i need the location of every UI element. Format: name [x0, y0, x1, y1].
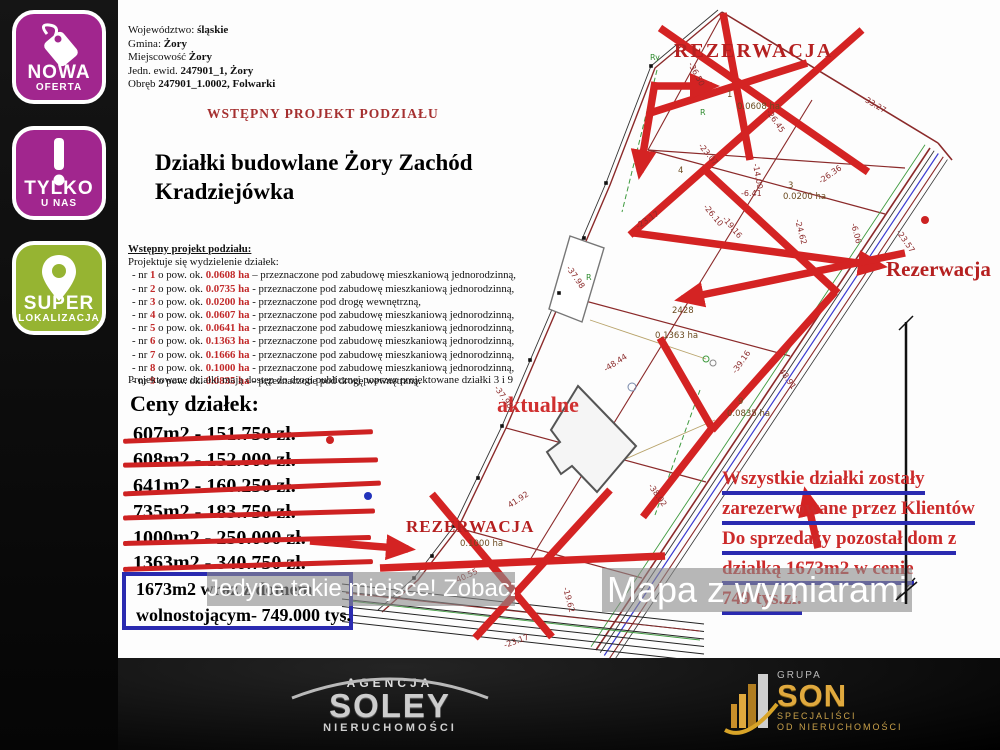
cadastral-header-line: Gmina: Żory: [128, 38, 275, 52]
plot-area-label: 0.0835 ha: [727, 409, 770, 419]
cadastral-header-line: Miejscowość Żory: [128, 51, 275, 65]
listing-flyer: RyRRREZERWACJARezerwacjaaktualneREZERWAC…: [0, 0, 1000, 750]
survey-point: [557, 291, 561, 295]
dimension-line-overlay: [890, 560, 922, 615]
dimension-label: -39.16: [730, 349, 752, 375]
price-row: 608m2 - 152.000 zł.: [133, 449, 296, 472]
cadastral-header-line: Jedn. ewid. 247901_1, Żory: [128, 65, 275, 79]
watermark-right: Mapa z wymiarami: [602, 568, 912, 612]
badge-sidebar: NOWA OFERTA TYLKO U NAS SUPER LOKALIZACJ…: [0, 0, 118, 750]
plot-area-label: 0.1000 ha: [460, 539, 503, 549]
map-boundary-line: [563, 295, 790, 356]
soley-agency-logo: AGENCJA SOLEY NIERUCHOMOŚCI: [280, 666, 500, 746]
cadastral-header: Województwo: śląskieGmina: ŻoryMiejscowo…: [128, 24, 275, 92]
dimension-label: -23.17: [634, 209, 661, 231]
price-list: Ceny działek: 607m2 - 151.750 zł.608m2 -…: [130, 391, 259, 417]
plot-area-label: 3: [788, 181, 793, 191]
price-row: 735m2 - 183.750 zł.: [133, 501, 296, 524]
son-name: SON: [777, 681, 903, 711]
survey-point: [528, 358, 532, 362]
parcel-division-list: Wstępny projekt podziału: Projektuje się…: [128, 243, 516, 388]
parcel-item: - nr 5 o pow. ok. 0.0641 ha - przeznaczo…: [128, 322, 516, 335]
survey-point: [604, 181, 608, 185]
page-title: Działki budowlane Żory Zachód Kradziejów…: [155, 148, 515, 206]
survey-point: [476, 476, 480, 480]
badge-nowa-oferta: NOWA OFERTA: [12, 10, 106, 104]
son-group-logo: GRUPA SON SPECJALIŚCI OD NIERUCHOMOŚCI: [715, 664, 945, 746]
badge-super-lokalizacja: SUPER LOKALIZACJA: [12, 241, 106, 335]
dimension-label: -24.62: [793, 218, 808, 245]
map-label: Rezerwacja: [886, 257, 991, 281]
plot-area-label: 9: [738, 397, 743, 407]
dimension-label: -6.41: [741, 189, 762, 198]
map-boundary-line: [648, 13, 723, 150]
parcel-item: - nr 7 o pow. ok. 0.1666 ha - przeznaczo…: [128, 349, 516, 362]
reservation-cross-mark: [310, 541, 408, 549]
plot-area-label: 2428: [672, 306, 694, 316]
dimension-label: -26.10: [701, 203, 724, 229]
price-row: 641m2 - 160.250 zł.: [133, 475, 296, 498]
reservation-cross-mark: [682, 253, 905, 299]
reservation-cross-mark: [640, 82, 655, 172]
parcel-item: - nr 4 o pow. ok. 0.0607 ha - przeznaczo…: [128, 309, 516, 322]
parcel-list-heading: Wstępny projekt podziału:: [128, 243, 516, 256]
badge-subtitle: LOKALIZACJA: [18, 313, 100, 325]
plot-area-label: 0.1363 ha: [655, 331, 698, 341]
price-row: 1000m2 - 250.000 zł.: [133, 527, 306, 550]
dimension-label: -23.57: [894, 228, 916, 254]
parcel-item: - nr 6 o pow. ok. 0.1363 ha - przeznaczo…: [128, 335, 516, 348]
exclamation-icon: [33, 138, 85, 188]
dimension-label: -48.44: [602, 352, 629, 374]
title-line-1: Działki budowlane Żory Zachód: [155, 148, 515, 177]
badge-subtitle: U NAS: [41, 198, 77, 210]
dimension-label: 48.91: [777, 367, 798, 391]
parcel-item: - nr 3 o pow. ok. 0.0200 ha - przeznaczo…: [128, 296, 516, 309]
survey-mark-label: R: [586, 273, 592, 282]
project-heading: WSTĘPNY PROJEKT PODZIAŁU: [207, 106, 439, 122]
plot-area-label: 1: [727, 90, 732, 100]
price-row: 607m2 - 151.750 zł.: [133, 423, 296, 446]
survey-point: [500, 424, 504, 428]
survey-mark-label: R: [700, 108, 706, 117]
dimension-label: -19.16: [720, 215, 743, 241]
price-heading: Ceny działek:: [130, 391, 259, 417]
dimension-label: -33.27: [861, 94, 888, 115]
survey-point: [649, 64, 653, 68]
parcel-footnote: Projektowane działki mają dostęp do drog…: [128, 374, 513, 386]
parcel-items: - nr 1 o pow. ok. 0.0608 ha – przeznaczo…: [128, 269, 516, 388]
title-line-2: Kradziejówka: [155, 177, 515, 206]
dimension-label: -6.06: [849, 222, 863, 244]
dimension-label: -23.17: [503, 633, 530, 650]
reservation-cross-mark: [634, 233, 880, 266]
reservation-note-line: Wszystkie działki zostały: [722, 466, 925, 495]
dimension-label: -26.36: [817, 163, 843, 185]
plot-area-label: 0.0200 ha: [783, 192, 826, 202]
survey-point: [582, 236, 586, 240]
cadastral-header-line: Obręb 247901_1.0002, Folwarki: [128, 78, 275, 92]
dimension-label: 41.92: [506, 490, 530, 510]
map-boundary-line: [938, 143, 952, 160]
son-subtitle-2: OD NIERUCHOMOŚCI: [777, 722, 903, 733]
soley-bottom-label: NIERUCHOMOŚCI: [280, 722, 500, 734]
badge-tylko-u-nas: TYLKO U NAS: [12, 126, 106, 220]
location-pin-icon: [33, 253, 85, 303]
badge-subtitle: OFERTA: [36, 82, 82, 94]
plot-area-label: 4: [678, 166, 683, 176]
dimension-label: -19.62: [561, 586, 576, 613]
survey-point: [430, 554, 434, 558]
price-tag-icon: [33, 22, 85, 70]
reservation-cross-mark: [380, 556, 665, 568]
map-label: REZERWACJA: [674, 40, 833, 62]
son-buildings-icon: [723, 670, 779, 742]
dimension-label: -14.00: [751, 163, 764, 190]
parcel-item: - nr 2 o pow. ok. 0.0735 ha - przeznaczo…: [128, 283, 516, 296]
reservation-note-line: zarezerwowane przez Klientów: [722, 496, 975, 525]
reservation-note-line: Do sprzedaży pozostał dom z: [722, 526, 956, 555]
watermark-left: Jedyne takie miejsce! Zobacz!: [207, 572, 515, 606]
map-boundary-line: [648, 150, 905, 168]
son-subtitle-1: SPECJALIŚCI: [777, 711, 903, 722]
survey-mark-label: Ry: [650, 53, 660, 62]
parcel-list-intro: Projektuje się wydzielenie działek:: [128, 256, 516, 269]
cadastral-header-line: Województwo: śląskie: [128, 24, 275, 38]
soley-arc-icon: [280, 668, 500, 702]
parcel-item: - nr 1 o pow. ok. 0.0608 ha – przeznaczo…: [128, 269, 516, 282]
map-label: REZERWACJA: [406, 517, 534, 536]
